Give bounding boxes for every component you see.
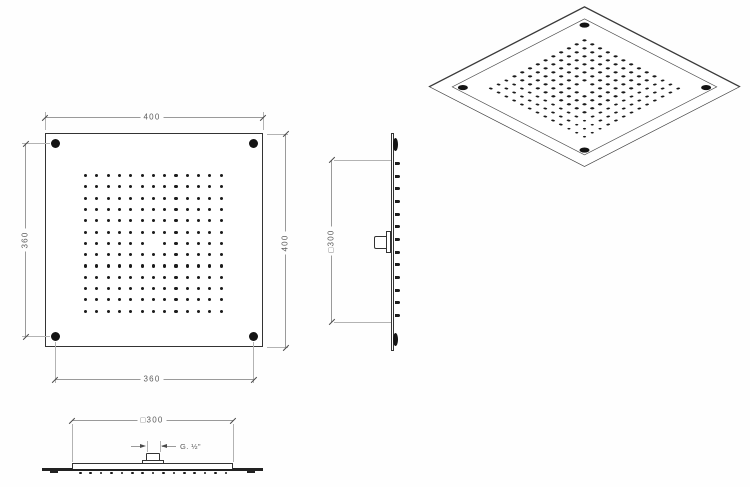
nozzle-dot xyxy=(129,287,132,290)
nozzle-dot xyxy=(504,95,509,98)
nozzle-dot xyxy=(220,276,223,279)
technical-drawing-sheet: 400 400 360 360 xyxy=(0,0,750,487)
nozzle-dot xyxy=(582,135,587,138)
nozzle-dot xyxy=(84,253,87,256)
corner-screw xyxy=(249,139,258,148)
nozzle-dot xyxy=(590,115,595,118)
nozzle-dot xyxy=(590,59,595,62)
dim-tick xyxy=(230,417,236,423)
nozzle-dot xyxy=(220,174,223,177)
nozzle-dot xyxy=(574,67,579,70)
nozzle-dot xyxy=(95,185,98,188)
nozzle-dot xyxy=(652,99,657,102)
nozzle-dot xyxy=(110,472,113,475)
nozzle-dot xyxy=(559,51,564,54)
nozzle-bump xyxy=(395,175,400,178)
nozzle-dot xyxy=(566,127,571,130)
nozzle-dot xyxy=(208,242,211,245)
nozzle-dot xyxy=(141,287,144,290)
nozzle-dot xyxy=(590,67,595,70)
nozzle-dot xyxy=(220,310,223,313)
corner-screw xyxy=(51,332,60,341)
corner-screw xyxy=(249,332,258,341)
nozzle-dot xyxy=(79,472,82,475)
nozzle-dot xyxy=(644,103,649,106)
nozzle-dot xyxy=(129,231,132,234)
nozzle-dot xyxy=(629,79,634,82)
nozzle-dot xyxy=(118,298,121,301)
nozzle-dot xyxy=(163,185,166,188)
nozzle-dot xyxy=(141,197,144,200)
nozzle-dot xyxy=(197,276,200,279)
nozzle-dot xyxy=(174,242,177,245)
nozzle-dot xyxy=(590,91,595,94)
nozzle-dot xyxy=(162,472,165,475)
nozzle-dot xyxy=(582,55,587,58)
nozzle-dot xyxy=(163,208,166,211)
nozzle-dot xyxy=(174,310,177,313)
nozzle-dot xyxy=(152,231,155,234)
nozzle-dot xyxy=(129,197,132,200)
nozzle-dot xyxy=(163,298,166,301)
nozzle-dot xyxy=(141,472,144,475)
nozzle-dot xyxy=(186,185,189,188)
nozzle-dot xyxy=(208,298,211,301)
extension-line xyxy=(334,322,391,323)
nozzle-dot xyxy=(574,59,579,62)
nozzle-dot xyxy=(621,83,626,86)
dim-tick xyxy=(251,376,257,382)
nozzle-dot xyxy=(214,472,217,475)
nozzle-dot xyxy=(590,131,595,134)
nozzle-dot xyxy=(95,287,98,290)
nozzle-bump xyxy=(395,225,400,228)
nozzle-dot xyxy=(84,197,87,200)
nozzle-dot xyxy=(152,208,155,211)
nozzle-dot xyxy=(174,253,177,256)
dim-label-screws-left: 360 xyxy=(21,229,30,252)
nozzle-dot xyxy=(186,264,189,267)
nozzle-dot xyxy=(141,185,144,188)
bottom-view: □300 G. ½" xyxy=(0,400,320,487)
nozzle-dot xyxy=(629,63,634,66)
nozzle-dot xyxy=(174,264,177,267)
nozzle-dot xyxy=(220,242,223,245)
nozzle-dot xyxy=(644,87,649,90)
nozzle-dot xyxy=(613,79,618,82)
nozzle-dot xyxy=(118,264,121,267)
nozzle-dot xyxy=(644,71,649,74)
nozzle-bump xyxy=(395,238,400,241)
nozzle-dot xyxy=(186,231,189,234)
nozzle-dot xyxy=(174,185,177,188)
nozzle-dot xyxy=(152,287,155,290)
nozzle-dot xyxy=(559,67,564,70)
nozzle-dot xyxy=(208,287,211,290)
nozzle-dot xyxy=(84,310,87,313)
nozzle-dot xyxy=(574,51,579,54)
nozzle-dot xyxy=(141,219,144,222)
extension-line xyxy=(253,342,254,383)
nozzle-dot xyxy=(107,298,110,301)
nozzle-dot xyxy=(208,276,211,279)
nozzle-dot xyxy=(89,472,92,475)
nozzle-dot xyxy=(163,264,166,267)
nozzle-dot xyxy=(582,111,587,114)
nozzle-dot xyxy=(152,185,155,188)
nozzle-dot xyxy=(129,208,132,211)
nozzle-dot xyxy=(152,264,155,267)
nozzle-dot xyxy=(152,276,155,279)
nozzle-dot xyxy=(566,119,571,122)
nozzle-dot xyxy=(559,107,564,110)
nozzle-dot xyxy=(186,298,189,301)
nozzle-dot xyxy=(118,276,121,279)
nozzle-dot xyxy=(95,242,98,245)
nozzle-dot xyxy=(613,55,618,58)
nozzle-dot xyxy=(598,71,603,74)
nozzle-dot xyxy=(95,253,98,256)
nozzle-dot xyxy=(582,119,587,122)
nozzle-dot xyxy=(152,197,155,200)
side-plate-edge xyxy=(391,133,394,351)
nozzle-dot xyxy=(551,87,556,90)
nozzle-bump xyxy=(395,289,400,292)
nozzle-dot xyxy=(637,107,642,110)
perspective-panel-outline xyxy=(428,6,741,167)
nozzle-dot xyxy=(629,95,634,98)
nozzle-dot xyxy=(107,219,110,222)
side-nozzle-bumps xyxy=(395,162,401,322)
nozzle-dot xyxy=(543,107,548,110)
nozzle-dot xyxy=(141,242,144,245)
nozzle-dot xyxy=(598,55,603,58)
nozzle-bump xyxy=(395,251,400,254)
nozzle-dot xyxy=(129,310,132,313)
nozzle-dot xyxy=(566,111,571,114)
nozzle-dot xyxy=(197,310,200,313)
nozzle-dot xyxy=(543,59,548,62)
nozzle-dot xyxy=(152,219,155,222)
nozzle-dot xyxy=(197,253,200,256)
nozzle-bump xyxy=(395,263,400,266)
nozzle-dot xyxy=(129,298,132,301)
nozzle-dot xyxy=(535,111,540,114)
side-screw-head xyxy=(393,333,398,346)
nozzle-dot xyxy=(566,95,571,98)
nozzle-dot xyxy=(225,472,228,475)
nozzle-dot xyxy=(605,59,610,62)
nozzle-dot xyxy=(95,197,98,200)
nozzle-dot xyxy=(152,310,155,313)
nozzle-dot xyxy=(107,231,110,234)
nozzle-dot xyxy=(163,287,166,290)
nozzle-dot xyxy=(621,115,626,118)
nozzle-dot xyxy=(621,59,626,62)
nozzle-dot xyxy=(605,51,610,54)
nozzle-dot xyxy=(118,231,121,234)
nozzle-dot xyxy=(186,174,189,177)
nozzle-dot xyxy=(131,472,134,475)
nozzle-dot xyxy=(84,231,87,234)
nozzle-dot xyxy=(496,83,501,86)
nozzle-dot xyxy=(519,71,524,74)
flange-end-mark xyxy=(50,471,58,473)
nozzle-dot xyxy=(197,197,200,200)
nozzle-dot xyxy=(197,242,200,245)
nozzle-dot xyxy=(551,95,556,98)
nozzle-dot xyxy=(519,87,524,90)
nozzle-dot xyxy=(629,87,634,90)
nozzle-dot xyxy=(582,127,587,130)
nozzle-dot xyxy=(163,231,166,234)
nozzle-dot xyxy=(107,185,110,188)
nozzle-dot xyxy=(512,75,517,78)
nozzle-dot xyxy=(174,231,177,234)
nozzle-dot xyxy=(152,298,155,301)
nozzle-dot xyxy=(551,71,556,74)
nozzle-dot xyxy=(543,115,548,118)
inlet-connector-tab xyxy=(374,236,387,249)
nozzle-dot xyxy=(551,63,556,66)
nozzle-dot xyxy=(527,67,532,70)
nozzle-dot xyxy=(512,99,517,102)
nozzle-dot xyxy=(590,123,595,126)
nozzle-dot xyxy=(197,174,200,177)
dim-label-height-right: 400 xyxy=(281,232,290,255)
nozzle-dot xyxy=(582,39,587,42)
nozzle-dot xyxy=(220,219,223,222)
nozzle-dot xyxy=(95,174,98,177)
nozzle-dot xyxy=(186,197,189,200)
nozzle-dot xyxy=(566,103,571,106)
nozzle-dot xyxy=(574,75,579,78)
nozzle-dot xyxy=(527,99,532,102)
nozzle-dot xyxy=(660,95,665,98)
nozzle-dot xyxy=(621,99,626,102)
nozzle-dot xyxy=(107,287,110,290)
nozzle-dot xyxy=(637,67,642,70)
nozzle-dot xyxy=(183,472,186,475)
nozzle-dot xyxy=(551,79,556,82)
nozzle-dot xyxy=(598,127,603,130)
nozzle-dot xyxy=(141,276,144,279)
nozzle-dot xyxy=(621,67,626,70)
nozzle-dot xyxy=(163,174,166,177)
nozzle-dot xyxy=(152,174,155,177)
nozzle-dot xyxy=(527,83,532,86)
nozzle-dot xyxy=(590,83,595,86)
side-screw-head xyxy=(393,138,398,151)
nozzle-dot xyxy=(598,103,603,106)
nozzle-dot xyxy=(118,174,121,177)
nozzle-dot xyxy=(621,91,626,94)
nozzle-dot xyxy=(605,75,610,78)
nozzle-dot xyxy=(668,91,673,94)
nozzle-dot xyxy=(644,95,649,98)
nozzle-dot xyxy=(129,219,132,222)
nozzle-dot xyxy=(95,298,98,301)
nozzle-dot xyxy=(163,242,166,245)
nozzle-dot xyxy=(208,185,211,188)
nozzle-dot xyxy=(637,99,642,102)
nozzle-dot xyxy=(118,287,121,290)
nozzle-grid xyxy=(84,174,224,314)
flange-end-mark xyxy=(247,471,255,473)
nozzle-dot xyxy=(84,276,87,279)
bottom-nozzle-row xyxy=(79,472,239,476)
nozzle-dot xyxy=(107,242,110,245)
nozzle-dot xyxy=(141,231,144,234)
nozzle-dot xyxy=(613,71,618,74)
nozzle-dot xyxy=(208,310,211,313)
nozzle-dot xyxy=(129,276,132,279)
nozzle-dot xyxy=(590,99,595,102)
nozzle-dot xyxy=(186,253,189,256)
nozzle-dot xyxy=(574,83,579,86)
nozzle-dot xyxy=(208,253,211,256)
nozzle-dot xyxy=(129,185,132,188)
nozzle-dot xyxy=(652,83,657,86)
nozzle-dot xyxy=(163,310,166,313)
nozzle-dot xyxy=(208,219,211,222)
nozzle-dot xyxy=(668,83,673,86)
nozzle-dot xyxy=(84,242,87,245)
nozzle-dot xyxy=(220,253,223,256)
nozzle-dot xyxy=(660,87,665,90)
perspective-view xyxy=(428,6,741,167)
nozzle-dot xyxy=(582,95,587,98)
nozzle-bump xyxy=(395,276,400,279)
nozzle-dot xyxy=(204,472,207,475)
nozzle-dot xyxy=(197,287,200,290)
nozzle-dot xyxy=(543,99,548,102)
nozzle-dot xyxy=(613,87,618,90)
nozzle-dot xyxy=(590,75,595,78)
nozzle-dot xyxy=(613,119,618,122)
nozzle-dot xyxy=(141,174,144,177)
nozzle-dot xyxy=(551,119,556,122)
dim-label-width-top: 400 xyxy=(141,113,164,122)
extension-line xyxy=(147,441,148,452)
nozzle-dot xyxy=(107,264,110,267)
extension-line xyxy=(233,424,234,462)
nozzle-dot xyxy=(174,287,177,290)
nozzle-dot xyxy=(84,219,87,222)
nozzle-dot xyxy=(566,47,571,50)
nozzle-dot xyxy=(535,63,540,66)
nozzle-dot xyxy=(543,91,548,94)
nozzle-dot xyxy=(141,298,144,301)
nozzle-dot xyxy=(504,87,509,90)
nozzle-dot xyxy=(582,47,587,50)
nozzle-dot xyxy=(129,264,132,267)
nozzle-dot xyxy=(174,208,177,211)
nozzle-dot xyxy=(605,83,610,86)
nozzle-dot xyxy=(496,91,501,94)
nozzle-dot xyxy=(174,276,177,279)
nozzle-dot xyxy=(95,310,98,313)
thread-size-label: G. ½" xyxy=(178,443,203,451)
corner-screw xyxy=(51,139,60,148)
nozzle-dot xyxy=(118,208,121,211)
nozzle-dot xyxy=(100,472,103,475)
nozzle-dot xyxy=(197,264,200,267)
nozzle-dot xyxy=(559,99,564,102)
extension-line xyxy=(263,112,264,130)
nozzle-dot xyxy=(118,253,121,256)
nozzle-dot xyxy=(527,107,532,110)
nozzle-dot xyxy=(84,208,87,211)
nozzle-dot xyxy=(629,103,634,106)
nozzle-dot xyxy=(141,264,144,267)
nozzle-dot xyxy=(590,51,595,54)
extension-line xyxy=(334,160,391,161)
nozzle-dot xyxy=(174,298,177,301)
nozzle-dot xyxy=(220,231,223,234)
nozzle-dot xyxy=(605,115,610,118)
nozzle-dot xyxy=(535,71,540,74)
nozzle-dot xyxy=(527,91,532,94)
nozzle-dot xyxy=(208,174,211,177)
nozzle-dot xyxy=(152,253,155,256)
nozzle-dot xyxy=(129,174,132,177)
nozzle-dot xyxy=(551,103,556,106)
nozzle-dot xyxy=(84,185,87,188)
nozzle-bump xyxy=(395,301,400,304)
nozzle-dot xyxy=(141,208,144,211)
nozzle-dot xyxy=(107,253,110,256)
nozzle-dot xyxy=(566,87,571,90)
nozzle-dot xyxy=(629,111,634,114)
nozzle-dot xyxy=(197,208,200,211)
nozzle-dot xyxy=(141,310,144,313)
nozzle-dot xyxy=(535,95,540,98)
nozzle-dot xyxy=(637,83,642,86)
nozzle-dot xyxy=(118,219,121,222)
nozzle-dot xyxy=(118,242,121,245)
nozzle-dot xyxy=(574,107,579,110)
front-view: 400 400 360 360 xyxy=(0,0,310,400)
nozzle-dot xyxy=(220,197,223,200)
nozzle-dot xyxy=(197,298,200,301)
inlet-connector-base xyxy=(142,460,164,464)
nozzle-dot xyxy=(676,87,681,90)
nozzle-dot xyxy=(543,83,548,86)
nozzle-dot xyxy=(559,91,564,94)
nozzle-dot xyxy=(566,55,571,58)
nozzle-dot xyxy=(118,310,121,313)
extension-line xyxy=(72,424,73,462)
nozzle-dot xyxy=(613,111,618,114)
nozzle-dot xyxy=(613,63,618,66)
nozzle-dot xyxy=(141,253,144,256)
nozzle-dot xyxy=(613,103,618,106)
nozzle-dot xyxy=(605,67,610,70)
nozzle-dot xyxy=(598,87,603,90)
nozzle-dot xyxy=(95,219,98,222)
arrow-right-icon xyxy=(140,444,146,448)
nozzle-dot xyxy=(197,231,200,234)
nozzle-dot xyxy=(107,197,110,200)
nozzle-dot xyxy=(512,83,517,86)
nozzle-dot xyxy=(173,472,176,475)
nozzle-dot xyxy=(559,75,564,78)
nozzle-dot xyxy=(574,91,579,94)
nozzle-dot xyxy=(559,115,564,118)
nozzle-dot xyxy=(121,472,124,475)
nozzle-dot xyxy=(208,264,211,267)
